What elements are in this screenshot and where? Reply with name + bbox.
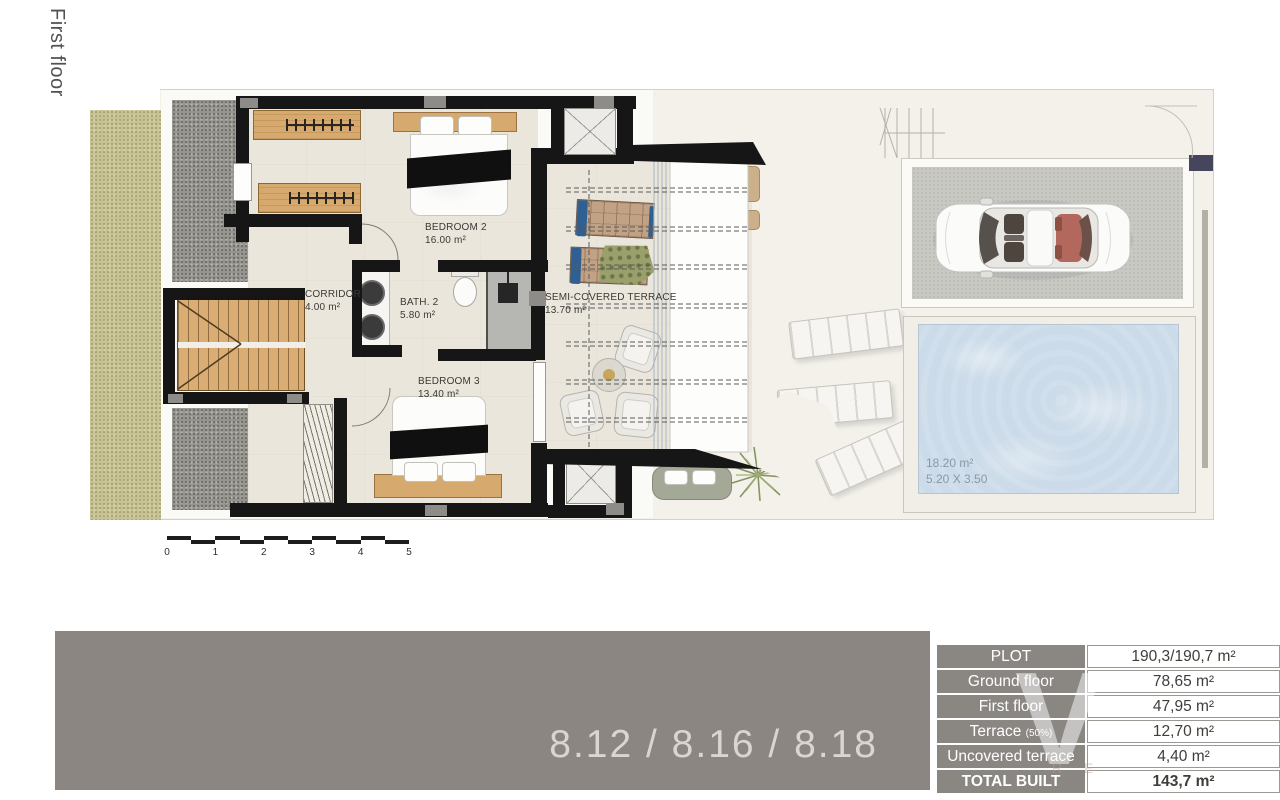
cushion	[566, 397, 597, 430]
window	[533, 362, 546, 442]
wicker-chair	[744, 166, 760, 202]
room-area: 4.00 m²	[305, 302, 361, 315]
boundary-post	[1189, 155, 1213, 171]
wall	[334, 398, 347, 505]
scale-tick: 4	[358, 547, 364, 558]
wall	[531, 262, 545, 360]
room-name: BATH. 2	[400, 297, 438, 310]
wall	[352, 345, 402, 357]
scale-tick: 5	[406, 547, 412, 558]
bench-pillow	[692, 470, 716, 485]
scale-tick: 0	[164, 547, 170, 558]
shower	[486, 269, 532, 349]
wall	[163, 288, 175, 404]
hanger-rod	[289, 192, 354, 204]
room-label-bedroom2: BEDROOM 2 16.00 m²	[425, 222, 487, 247]
basin	[359, 314, 385, 340]
wall	[230, 503, 548, 517]
bed3-nightstands	[374, 474, 502, 498]
row-value: 12,70 m²	[1087, 720, 1280, 743]
wall	[616, 452, 632, 505]
staircase	[177, 299, 305, 391]
boundary-wall	[1202, 210, 1208, 468]
room-area: 16.00 m²	[425, 235, 487, 248]
column	[594, 96, 614, 108]
row-value: 78,65 m²	[1087, 670, 1280, 693]
basin	[359, 280, 385, 306]
column	[606, 503, 624, 515]
window	[233, 163, 252, 201]
table-row: Ground floor 78,65 m²	[937, 670, 1280, 693]
bed2-headboard	[393, 112, 517, 132]
bed3-pillow	[404, 462, 438, 482]
scale-segment	[312, 536, 336, 540]
cushion	[621, 399, 652, 432]
wardrobe-bottom	[258, 183, 361, 213]
floor-plan-page: First floor	[0, 0, 1280, 800]
scale-tick: 3	[309, 547, 315, 558]
car	[928, 190, 1138, 286]
lounger-rail	[648, 206, 654, 238]
scale-bar: 0 1 2 3 4 5	[167, 536, 413, 560]
column	[424, 96, 446, 108]
area-summary-table: PLOT 190,3/190,7 m² Ground floor 78,65 m…	[937, 645, 1280, 795]
armchair	[613, 391, 659, 439]
room-name: CORRIDOR	[305, 289, 361, 302]
pool-area: 18.20 m²	[926, 455, 987, 471]
wall	[224, 214, 362, 227]
row-value: 4,40 m²	[1087, 745, 1280, 768]
table-row: Uncovered terrace 4,40 m²	[937, 745, 1280, 768]
row-value: 143,7 m²	[1087, 770, 1280, 793]
stair-landing	[178, 342, 306, 348]
scale-segment	[191, 540, 215, 544]
wall	[349, 214, 362, 244]
shaft	[564, 108, 616, 155]
scale-segment	[336, 540, 360, 544]
toilet-bowl	[453, 277, 477, 307]
scale-segment	[264, 536, 288, 540]
wicker-chair	[745, 210, 760, 230]
room-name: SEMI-COVERED TERRACE	[545, 292, 677, 305]
scale-segment	[215, 536, 239, 540]
pool-dimensions: 5.20 X 3.50	[926, 471, 987, 487]
room-label-corridor: CORRIDOR 4.00 m²	[305, 289, 361, 314]
column	[168, 394, 183, 403]
column	[425, 505, 447, 516]
column	[287, 394, 302, 403]
bed3-pillow	[442, 462, 476, 482]
wall	[438, 349, 536, 361]
scale-tick: 1	[213, 547, 219, 558]
room-area: 5.80 m²	[400, 310, 438, 323]
lounger-rail	[570, 248, 581, 284]
column	[240, 98, 258, 108]
room-name: BEDROOM 2	[425, 222, 487, 235]
sun-lounger	[575, 199, 655, 239]
room-area: 13.40 m²	[418, 389, 480, 402]
bed2-pillow	[458, 116, 492, 136]
unit-numbers: 8.12 / 8.16 / 8.18	[549, 723, 878, 767]
scale-segment	[288, 540, 312, 544]
row-value: 47,95 m²	[1087, 695, 1280, 718]
scale-segment	[385, 540, 409, 544]
wall	[163, 288, 305, 300]
row-value: 190,3/190,7 m²	[1087, 645, 1280, 668]
column	[529, 291, 546, 306]
room-label-terrace: SEMI-COVERED TERRACE 13.70 m²	[545, 292, 677, 317]
room-label-bedroom3: BEDROOM 3 13.40 m²	[418, 376, 480, 401]
table-row: PLOT 190,3/190,7 m²	[937, 645, 1280, 668]
wardrobe-top	[253, 110, 361, 140]
table-row: First floor 47,95 m²	[937, 695, 1280, 718]
shaft	[566, 452, 616, 504]
hanger-rod	[286, 119, 354, 131]
scale-segment	[167, 536, 191, 540]
scale-segment	[361, 536, 385, 540]
scale-tick: 2	[261, 547, 267, 558]
garden-strip	[90, 110, 161, 520]
pool-label: 18.20 m² 5.20 X 3.50	[926, 455, 987, 487]
table-decor	[603, 369, 615, 381]
room-name: BEDROOM 3	[418, 376, 480, 389]
cushion	[621, 332, 654, 367]
bed2-pillow	[420, 116, 454, 136]
armchair	[558, 388, 606, 437]
wall	[531, 148, 547, 262]
lounger-rail	[576, 200, 588, 236]
bench-pillow	[664, 470, 688, 485]
shower-head	[498, 283, 518, 303]
page-title: First floor	[45, 8, 68, 128]
watermark-subtext: R E	[1052, 760, 1102, 776]
units-banner: 8.12 / 8.16 / 8.18	[55, 631, 930, 790]
table-row-total: TOTAL BUILT 143,7 m²	[937, 770, 1280, 793]
louver-panel	[303, 404, 333, 503]
table-row: Terrace (50%) 12,70 m²	[937, 720, 1280, 743]
room-area: 13.70 m²	[545, 305, 677, 318]
scale-segment	[240, 540, 264, 544]
room-label-bath2: BATH. 2 5.80 m²	[400, 297, 438, 322]
wall	[236, 109, 249, 165]
